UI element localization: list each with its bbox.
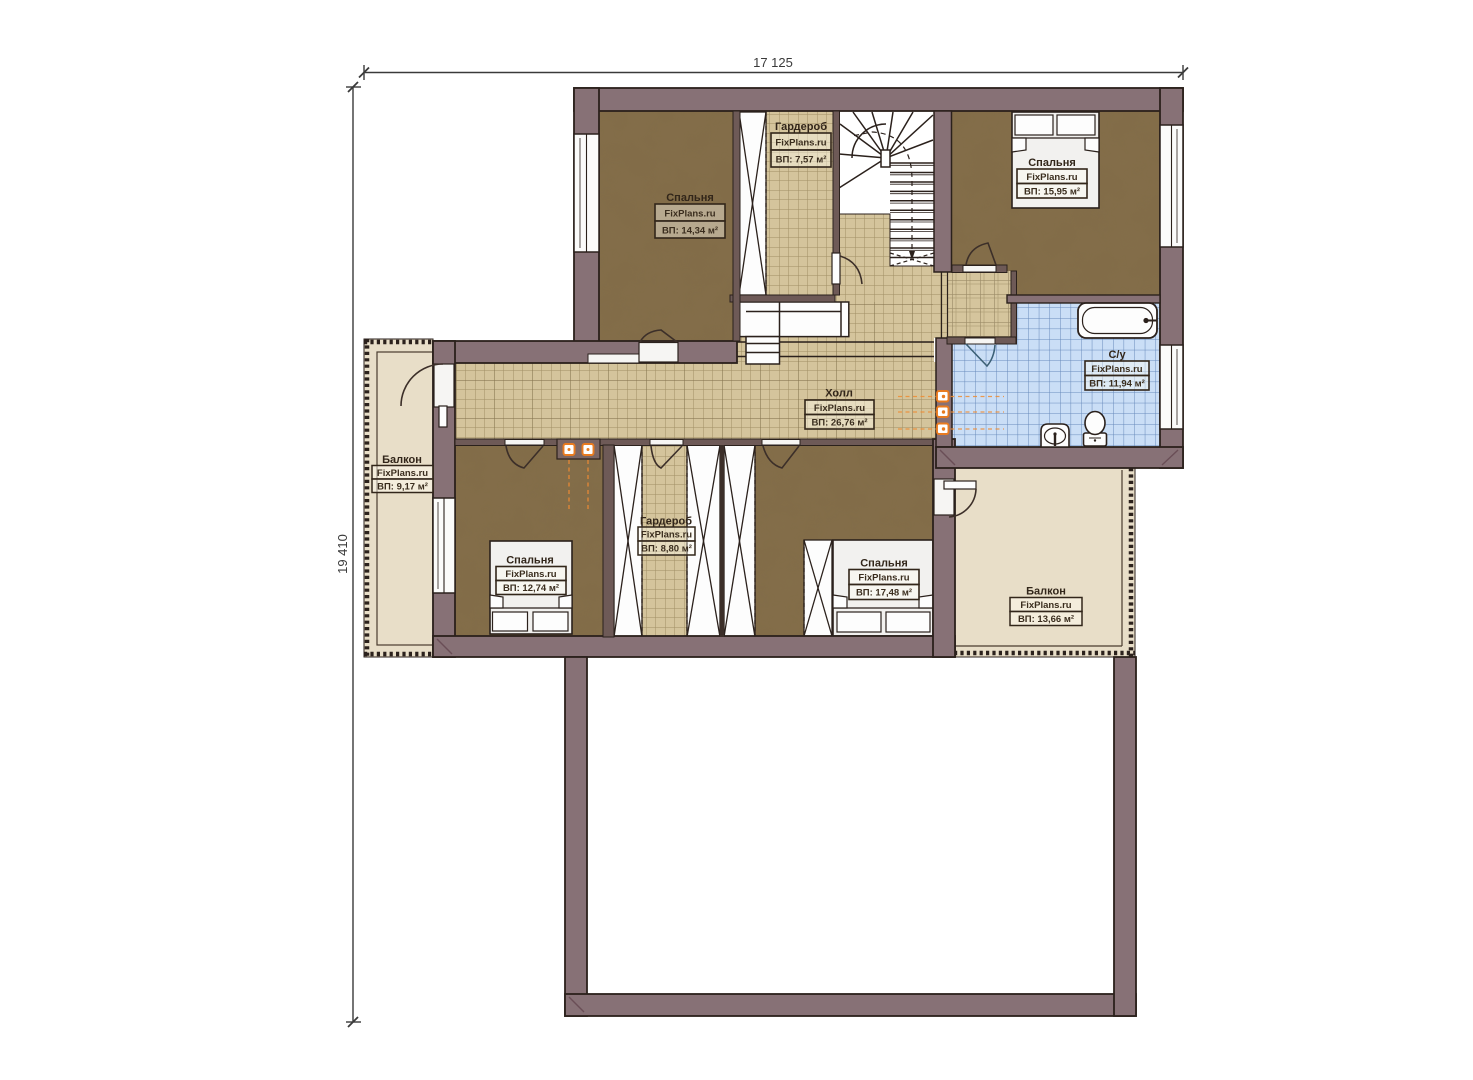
svg-text:FixPlans.ru: FixPlans.ru <box>505 569 556 580</box>
svg-text:Спальня: Спальня <box>506 555 554 567</box>
svg-text:Холл: Холл <box>825 388 853 400</box>
svg-text:FixPlans.ru: FixPlans.ru <box>641 530 692 541</box>
svg-text:FixPlans.ru: FixPlans.ru <box>814 403 865 414</box>
svg-text:Спальня: Спальня <box>666 192 714 204</box>
svg-text:ВП: 17,48 м²: ВП: 17,48 м² <box>856 588 912 599</box>
svg-text:ВП: 12,74 м²: ВП: 12,74 м² <box>503 583 559 594</box>
svg-text:ВП: 13,66 м²: ВП: 13,66 м² <box>1018 614 1074 625</box>
svg-text:Балкон: Балкон <box>382 454 422 466</box>
svg-text:19 410: 19 410 <box>335 534 350 574</box>
svg-text:Балкон: Балкон <box>1026 586 1066 598</box>
svg-text:ВП: 8,80 м²: ВП: 8,80 м² <box>641 544 692 555</box>
svg-text:ВП: 14,34 м²: ВП: 14,34 м² <box>662 226 718 237</box>
svg-text:FixPlans.ru: FixPlans.ru <box>1091 364 1142 375</box>
svg-text:17 125: 17 125 <box>753 55 793 70</box>
svg-text:Гардероб: Гардероб <box>775 121 827 133</box>
svg-text:FixPlans.ru: FixPlans.ru <box>1026 172 1077 183</box>
svg-text:FixPlans.ru: FixPlans.ru <box>775 138 826 149</box>
svg-text:Гардероб: Гардероб <box>640 516 692 528</box>
svg-text:ВП: 9,17 м²: ВП: 9,17 м² <box>377 482 428 493</box>
svg-text:ВП: 7,57 м²: ВП: 7,57 м² <box>776 155 827 166</box>
svg-text:ВП: 26,76 м²: ВП: 26,76 м² <box>811 418 867 429</box>
svg-text:Спальня: Спальня <box>1028 157 1076 169</box>
svg-text:ВП: 11,94 м²: ВП: 11,94 м² <box>1089 379 1145 390</box>
svg-text:FixPlans.ru: FixPlans.ru <box>664 209 715 220</box>
svg-text:FixPlans.ru: FixPlans.ru <box>1020 600 1071 611</box>
svg-text:Спальня: Спальня <box>860 558 908 570</box>
svg-text:FixPlans.ru: FixPlans.ru <box>858 573 909 584</box>
svg-text:С/у: С/у <box>1108 349 1126 361</box>
svg-text:FixPlans.ru: FixPlans.ru <box>377 468 428 479</box>
svg-text:ВП: 15,95 м²: ВП: 15,95 м² <box>1024 187 1080 198</box>
